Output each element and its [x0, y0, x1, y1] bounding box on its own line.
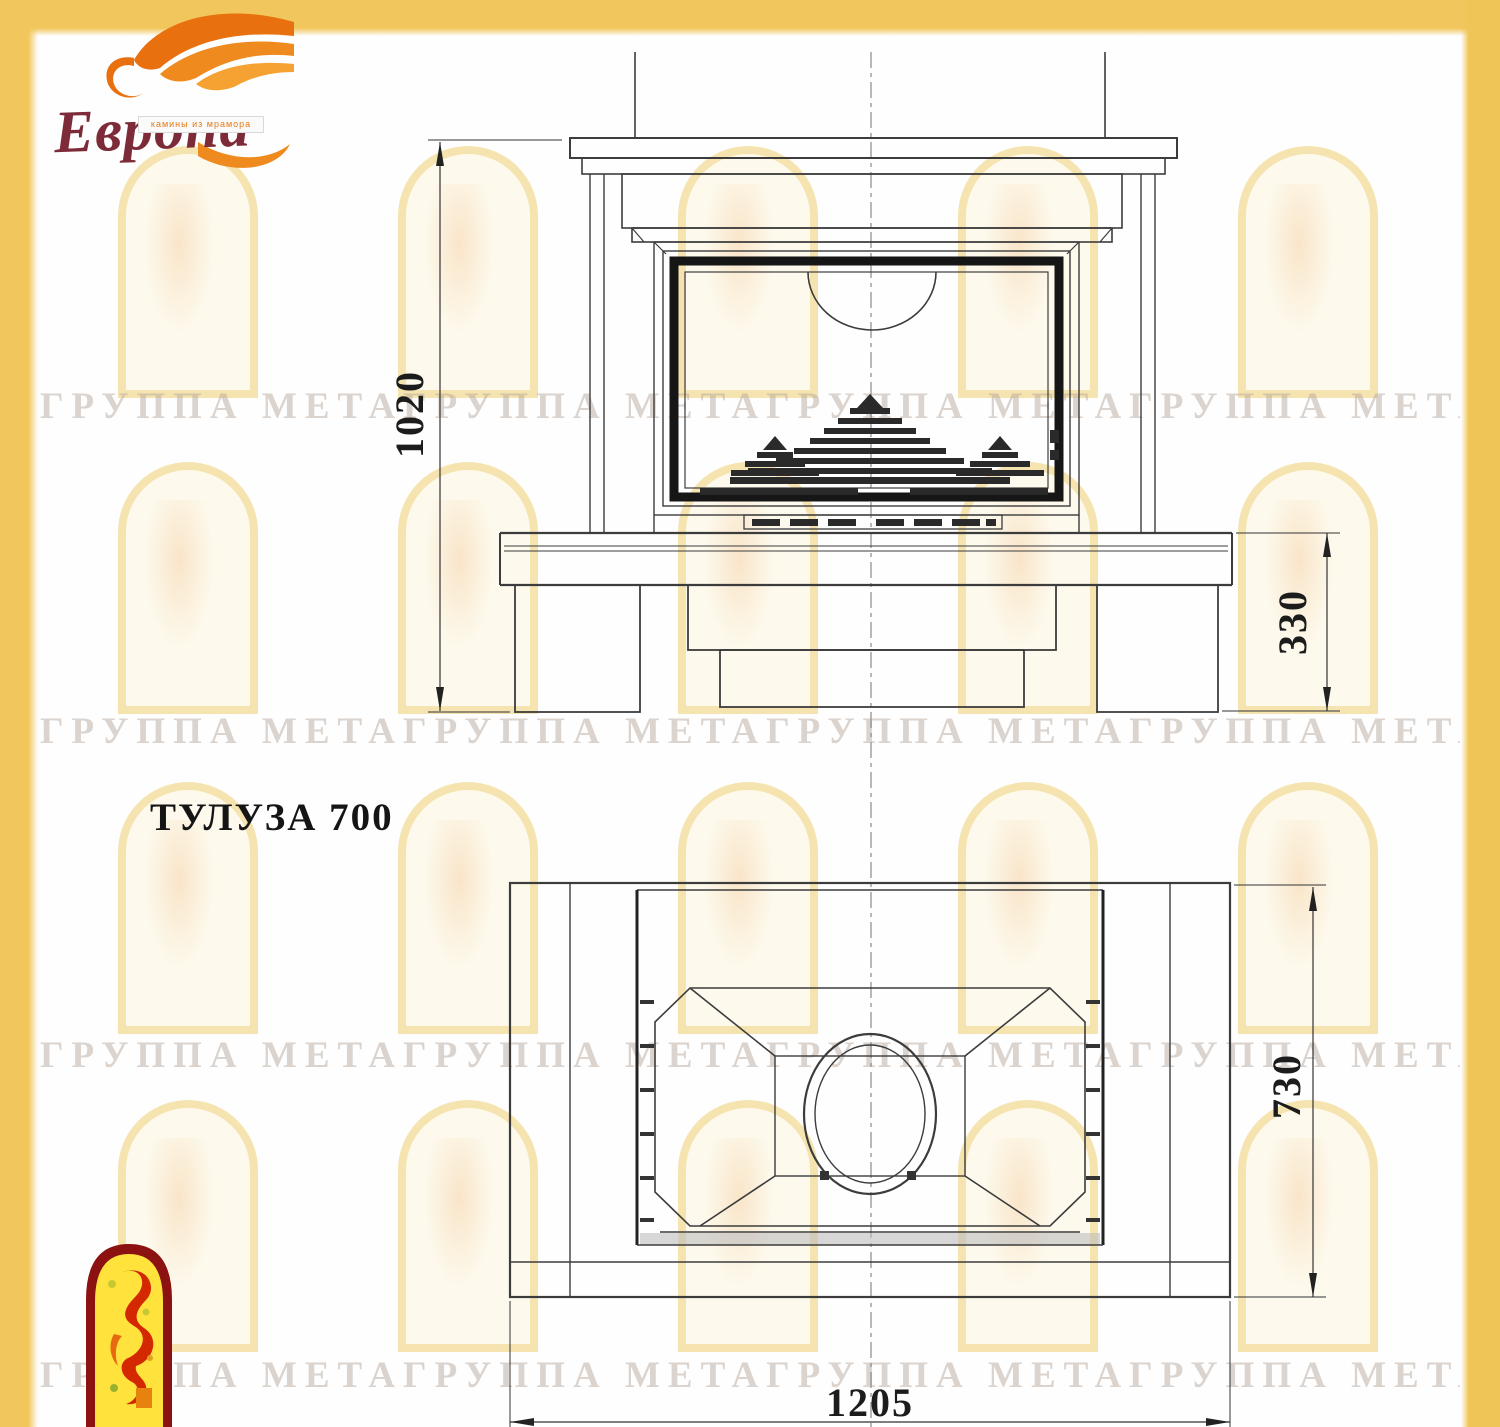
dimension-label-plinth: 330: [1270, 589, 1315, 655]
page-border-left: [0, 0, 38, 1427]
chimney-lines: [635, 52, 1105, 138]
europa-brand-logo: Европа камины из мрамора: [50, 6, 300, 186]
model-title: ТУЛУЗА 700: [150, 795, 394, 840]
fireplace-front-view: [500, 52, 1232, 712]
page-border-right: [1461, 0, 1500, 1427]
dimension-label-depth: 730: [1264, 1053, 1309, 1119]
brand-tagline: камины из мрамора: [138, 116, 264, 133]
scanned-fireplace-datasheet: ГРУППА МЕТАГРУППА МЕТАГРУППА МЕТАГРУППА …: [0, 0, 1500, 1427]
dimension-label-width: 1205: [826, 1380, 914, 1425]
fireplace-technical-drawing: 1020 330 730 1205: [0, 0, 1500, 1427]
fireplace-plan-view: [510, 883, 1230, 1297]
meta-group-emblem: [84, 1238, 174, 1427]
dimension-label-height: 1020: [387, 370, 432, 458]
